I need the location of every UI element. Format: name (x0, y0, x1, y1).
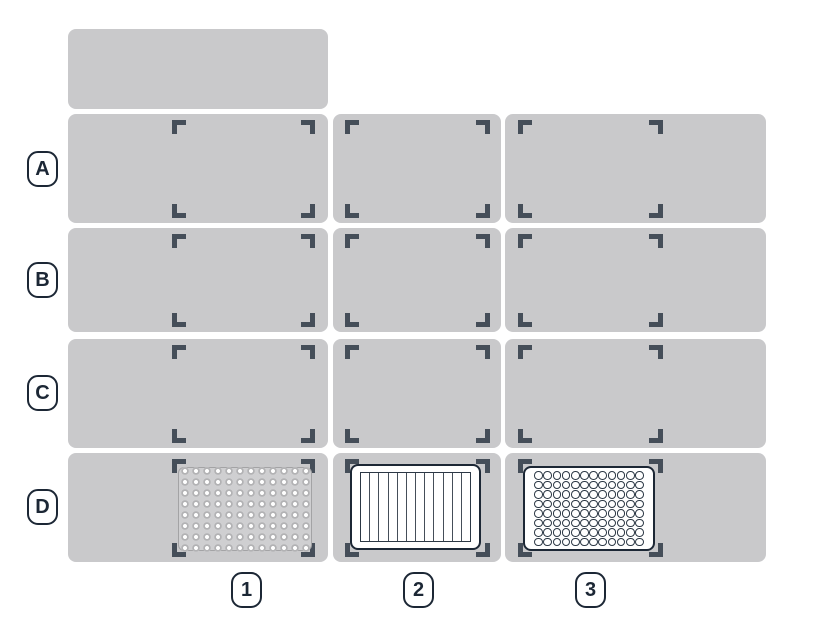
well (635, 481, 644, 490)
slot-corner-bracket-icon (301, 429, 315, 443)
labware-96-well-plate-d3[interactable] (523, 466, 655, 551)
well (269, 511, 277, 519)
well (617, 481, 626, 490)
well (181, 500, 189, 508)
well (598, 519, 607, 528)
well (562, 509, 571, 518)
well (534, 471, 543, 480)
well (553, 471, 562, 480)
well (225, 511, 233, 519)
well (214, 511, 222, 519)
well (302, 533, 310, 541)
well (225, 500, 233, 508)
well (247, 489, 255, 497)
well (302, 489, 310, 497)
well-grid-d3 (534, 471, 644, 546)
deck-slot-c2[interactable] (333, 339, 501, 448)
well (214, 500, 222, 508)
well (302, 467, 310, 475)
slot-c1-labware-area (172, 345, 315, 443)
reservoir-channel (434, 473, 443, 541)
well (214, 489, 222, 497)
well (203, 511, 211, 519)
well (543, 509, 552, 518)
well (247, 522, 255, 530)
well (635, 528, 644, 537)
well (203, 489, 211, 497)
row-label-b: B (27, 262, 58, 298)
row-label-a: A (27, 151, 58, 187)
deck-slot-b2[interactable] (333, 228, 501, 332)
reservoir-channel (425, 473, 434, 541)
slot-corner-bracket-icon (301, 345, 315, 359)
well (302, 500, 310, 508)
well (580, 528, 589, 537)
well (225, 522, 233, 530)
well (291, 533, 299, 541)
slot-corner-bracket-icon (476, 204, 490, 218)
deck-slot-c1[interactable] (68, 339, 328, 448)
well (562, 538, 571, 547)
well (543, 538, 552, 547)
well (571, 519, 580, 528)
well (571, 481, 580, 490)
well (269, 522, 277, 530)
deck-map: A B C D 1 2 3 (0, 0, 822, 630)
well (302, 544, 310, 552)
well (534, 528, 543, 537)
well (258, 511, 266, 519)
well (580, 538, 589, 547)
well-grid-d1 (181, 467, 310, 552)
slot-corner-bracket-icon (345, 204, 359, 218)
well (258, 500, 266, 508)
well (608, 528, 617, 537)
well (580, 519, 589, 528)
well (258, 467, 266, 475)
well (543, 490, 552, 499)
well (553, 528, 562, 537)
well (225, 544, 233, 552)
slot-corner-bracket-icon (345, 313, 359, 327)
well (236, 522, 244, 530)
well (543, 519, 552, 528)
well (598, 481, 607, 490)
well (626, 500, 635, 509)
well (571, 509, 580, 518)
well (203, 522, 211, 530)
well (598, 500, 607, 509)
well (617, 509, 626, 518)
well (236, 489, 244, 497)
well (534, 500, 543, 509)
slot-a1-labware-area (172, 120, 315, 218)
well (236, 511, 244, 519)
well (617, 538, 626, 547)
reservoir-channels-d2 (360, 472, 471, 542)
well (571, 471, 580, 480)
deck-slot-a3[interactable] (505, 114, 766, 223)
well (626, 509, 635, 518)
reservoir-channel (398, 473, 407, 541)
labware-96-well-plate-d1[interactable] (178, 467, 312, 551)
well (608, 519, 617, 528)
slot-corner-bracket-icon (301, 204, 315, 218)
slot-corner-bracket-icon (172, 120, 186, 134)
slot-corner-bracket-icon (345, 429, 359, 443)
well (214, 522, 222, 530)
deck-slot-a1[interactable] (68, 114, 328, 223)
slot-corner-bracket-icon (476, 120, 490, 134)
well (543, 481, 552, 490)
well (247, 533, 255, 541)
labware-12-channel-reservoir-d2[interactable] (350, 464, 481, 550)
well (589, 528, 598, 537)
well (181, 533, 189, 541)
well (291, 500, 299, 508)
well (280, 500, 288, 508)
slot-c3-labware-area (518, 345, 663, 443)
well (258, 522, 266, 530)
well (247, 500, 255, 508)
well (608, 538, 617, 547)
well (181, 511, 189, 519)
well (589, 490, 598, 499)
slot-corner-bracket-icon (649, 120, 663, 134)
well (225, 489, 233, 497)
well (291, 489, 299, 497)
slot-corner-bracket-icon (476, 313, 490, 327)
reservoir-channel (389, 473, 398, 541)
well (192, 489, 200, 497)
slot-corner-bracket-icon (518, 234, 532, 248)
slot-corner-bracket-icon (172, 204, 186, 218)
well (203, 500, 211, 508)
well (302, 478, 310, 486)
well (580, 471, 589, 480)
well (562, 500, 571, 509)
well (236, 478, 244, 486)
well (214, 533, 222, 541)
well (192, 500, 200, 508)
slot-corner-bracket-icon (649, 313, 663, 327)
well (291, 544, 299, 552)
well (626, 471, 635, 480)
well (562, 481, 571, 490)
well (608, 481, 617, 490)
well (608, 500, 617, 509)
slot-corner-bracket-icon (649, 234, 663, 248)
slot-corner-bracket-icon (172, 429, 186, 443)
well (192, 467, 200, 475)
well (589, 471, 598, 480)
well (589, 509, 598, 518)
well (225, 478, 233, 486)
well (553, 481, 562, 490)
slot-c2-labware-area (345, 345, 490, 443)
well (635, 500, 644, 509)
well (181, 478, 189, 486)
row-label-d: D (27, 489, 58, 525)
well (280, 522, 288, 530)
slot-corner-bracket-icon (649, 345, 663, 359)
well (236, 544, 244, 552)
well (598, 509, 607, 518)
well (225, 533, 233, 541)
well (214, 544, 222, 552)
well (291, 478, 299, 486)
well (280, 544, 288, 552)
well (280, 478, 288, 486)
well (635, 509, 644, 518)
well (608, 471, 617, 480)
well (635, 519, 644, 528)
column-label-3: 3 (575, 572, 606, 608)
well (543, 471, 552, 480)
column-label-2: 2 (403, 572, 434, 608)
well (626, 519, 635, 528)
slot-b3-labware-area (518, 234, 663, 327)
well (589, 538, 598, 547)
well (598, 471, 607, 480)
slot-corner-bracket-icon (518, 313, 532, 327)
well (280, 511, 288, 519)
well (203, 544, 211, 552)
well (258, 489, 266, 497)
slot-corner-bracket-icon (476, 234, 490, 248)
well (580, 481, 589, 490)
well (181, 489, 189, 497)
slot-corner-bracket-icon (172, 345, 186, 359)
slot-corner-bracket-icon (301, 120, 315, 134)
well (617, 471, 626, 480)
well (626, 538, 635, 547)
well (617, 500, 626, 509)
well (280, 533, 288, 541)
well (580, 490, 589, 499)
well (571, 538, 580, 547)
slot-corner-bracket-icon (518, 204, 532, 218)
well (589, 481, 598, 490)
well (181, 467, 189, 475)
well (562, 471, 571, 480)
slot-corner-bracket-icon (476, 429, 490, 443)
well (534, 538, 543, 547)
well (617, 528, 626, 537)
well (571, 490, 580, 499)
slot-corner-bracket-icon (172, 234, 186, 248)
slot-corner-bracket-icon (518, 120, 532, 134)
well (543, 500, 552, 509)
well (225, 467, 233, 475)
reservoir-channel (361, 473, 370, 541)
well (258, 478, 266, 486)
well (543, 528, 552, 537)
well (598, 490, 607, 499)
well (598, 528, 607, 537)
slot-a3-labware-area (518, 120, 663, 218)
well (269, 500, 277, 508)
reservoir-channel (453, 473, 462, 541)
well (553, 519, 562, 528)
well (192, 533, 200, 541)
well (291, 522, 299, 530)
slot-a2-labware-area (345, 120, 490, 218)
well (617, 490, 626, 499)
slot-corner-bracket-icon (476, 345, 490, 359)
well (608, 490, 617, 499)
slot-corner-bracket-icon (518, 345, 532, 359)
slot-corner-bracket-icon (518, 429, 532, 443)
slot-corner-bracket-icon (345, 234, 359, 248)
well (203, 533, 211, 541)
well (181, 544, 189, 552)
well (626, 528, 635, 537)
slot-corner-bracket-icon (301, 313, 315, 327)
row-label-c: C (27, 375, 58, 411)
well (258, 544, 266, 552)
deck-slot-b3[interactable] (505, 228, 766, 332)
well (269, 544, 277, 552)
well (580, 509, 589, 518)
well (562, 528, 571, 537)
well (553, 538, 562, 547)
deck-extension-area (68, 29, 328, 109)
well (258, 533, 266, 541)
well (192, 544, 200, 552)
deck-slot-a2[interactable] (333, 114, 501, 223)
well (626, 490, 635, 499)
well (236, 467, 244, 475)
reservoir-channel (370, 473, 379, 541)
slot-corner-bracket-icon (345, 345, 359, 359)
well (236, 500, 244, 508)
well (192, 522, 200, 530)
deck-slot-c3[interactable] (505, 339, 766, 448)
well (269, 489, 277, 497)
column-label-1: 1 (231, 572, 262, 608)
well (192, 478, 200, 486)
slot-corner-bracket-icon (345, 120, 359, 134)
slot-b1-labware-area (172, 234, 315, 327)
well (214, 478, 222, 486)
well (534, 519, 543, 528)
well (534, 481, 543, 490)
well (203, 467, 211, 475)
well (181, 522, 189, 530)
well (589, 500, 598, 509)
well (247, 511, 255, 519)
reservoir-channel (407, 473, 416, 541)
well (617, 519, 626, 528)
slot-corner-bracket-icon (172, 313, 186, 327)
well (635, 538, 644, 547)
well (635, 471, 644, 480)
well (635, 490, 644, 499)
reservoir-channel (416, 473, 425, 541)
well (291, 511, 299, 519)
well (534, 490, 543, 499)
well (562, 519, 571, 528)
well (571, 528, 580, 537)
well (269, 478, 277, 486)
reservoir-channel (444, 473, 453, 541)
well (269, 533, 277, 541)
well (247, 544, 255, 552)
well (571, 500, 580, 509)
well (269, 467, 277, 475)
well (608, 509, 617, 518)
slot-corner-bracket-icon (649, 204, 663, 218)
reservoir-channel (462, 473, 470, 541)
well (247, 467, 255, 475)
well (562, 490, 571, 499)
slot-corner-bracket-icon (649, 429, 663, 443)
reservoir-channel (379, 473, 388, 541)
slot-b2-labware-area (345, 234, 490, 327)
well (280, 467, 288, 475)
well (236, 533, 244, 541)
well (302, 522, 310, 530)
well (598, 538, 607, 547)
well (589, 519, 598, 528)
well (302, 511, 310, 519)
well (580, 500, 589, 509)
deck-slot-b1[interactable] (68, 228, 328, 332)
well (626, 481, 635, 490)
slot-corner-bracket-icon (301, 234, 315, 248)
well (534, 509, 543, 518)
well (203, 478, 211, 486)
well (553, 490, 562, 499)
well (192, 511, 200, 519)
well (291, 467, 299, 475)
well (553, 509, 562, 518)
well (247, 478, 255, 486)
well (553, 500, 562, 509)
well (214, 467, 222, 475)
well (280, 489, 288, 497)
